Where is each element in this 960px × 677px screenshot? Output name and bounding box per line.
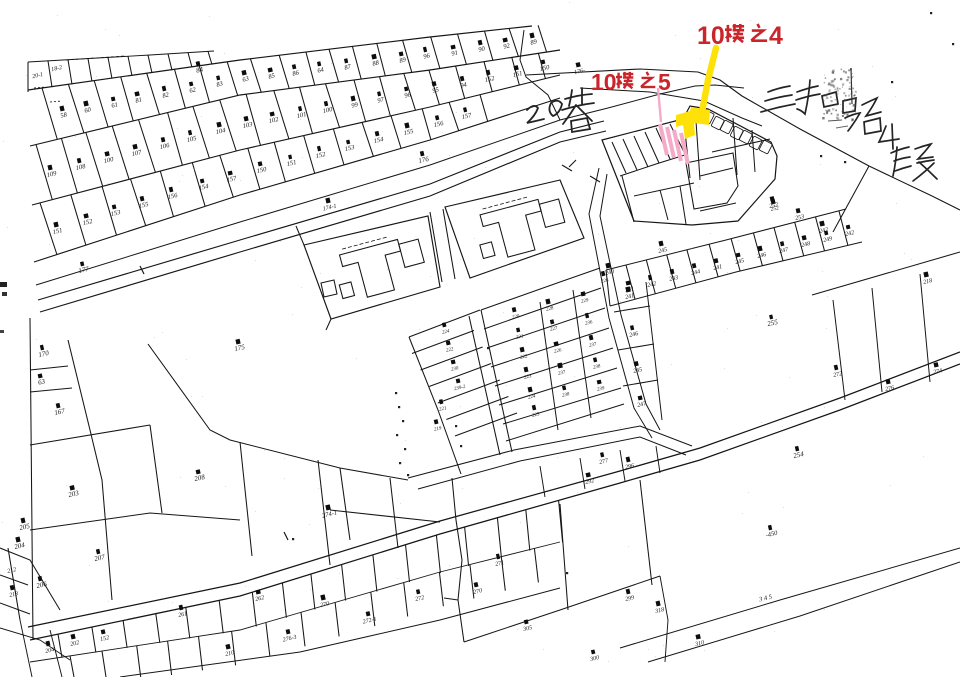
svg-text:5: 5 — [658, 69, 671, 95]
svg-text:10: 10 — [591, 69, 617, 95]
svg-text:10: 10 — [697, 22, 725, 50]
svg-text:4: 4 — [769, 22, 783, 50]
